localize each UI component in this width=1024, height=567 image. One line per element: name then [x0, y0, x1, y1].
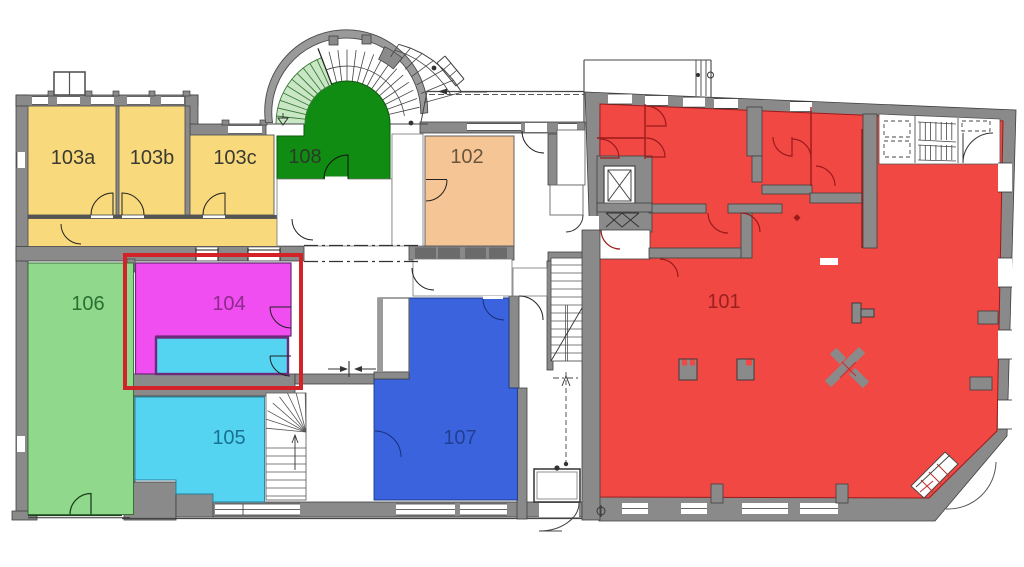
svg-text:104: 104: [212, 293, 245, 315]
svg-text:103b: 103b: [130, 147, 175, 169]
svg-text:102: 102: [450, 146, 483, 168]
svg-text:106: 106: [71, 293, 104, 315]
svg-text:103a: 103a: [51, 147, 96, 169]
svg-text:101: 101: [707, 291, 740, 313]
svg-text:103c: 103c: [213, 147, 256, 169]
svg-text:105: 105: [212, 427, 245, 449]
svg-text:108: 108: [288, 146, 321, 168]
svg-text:107: 107: [443, 427, 476, 449]
